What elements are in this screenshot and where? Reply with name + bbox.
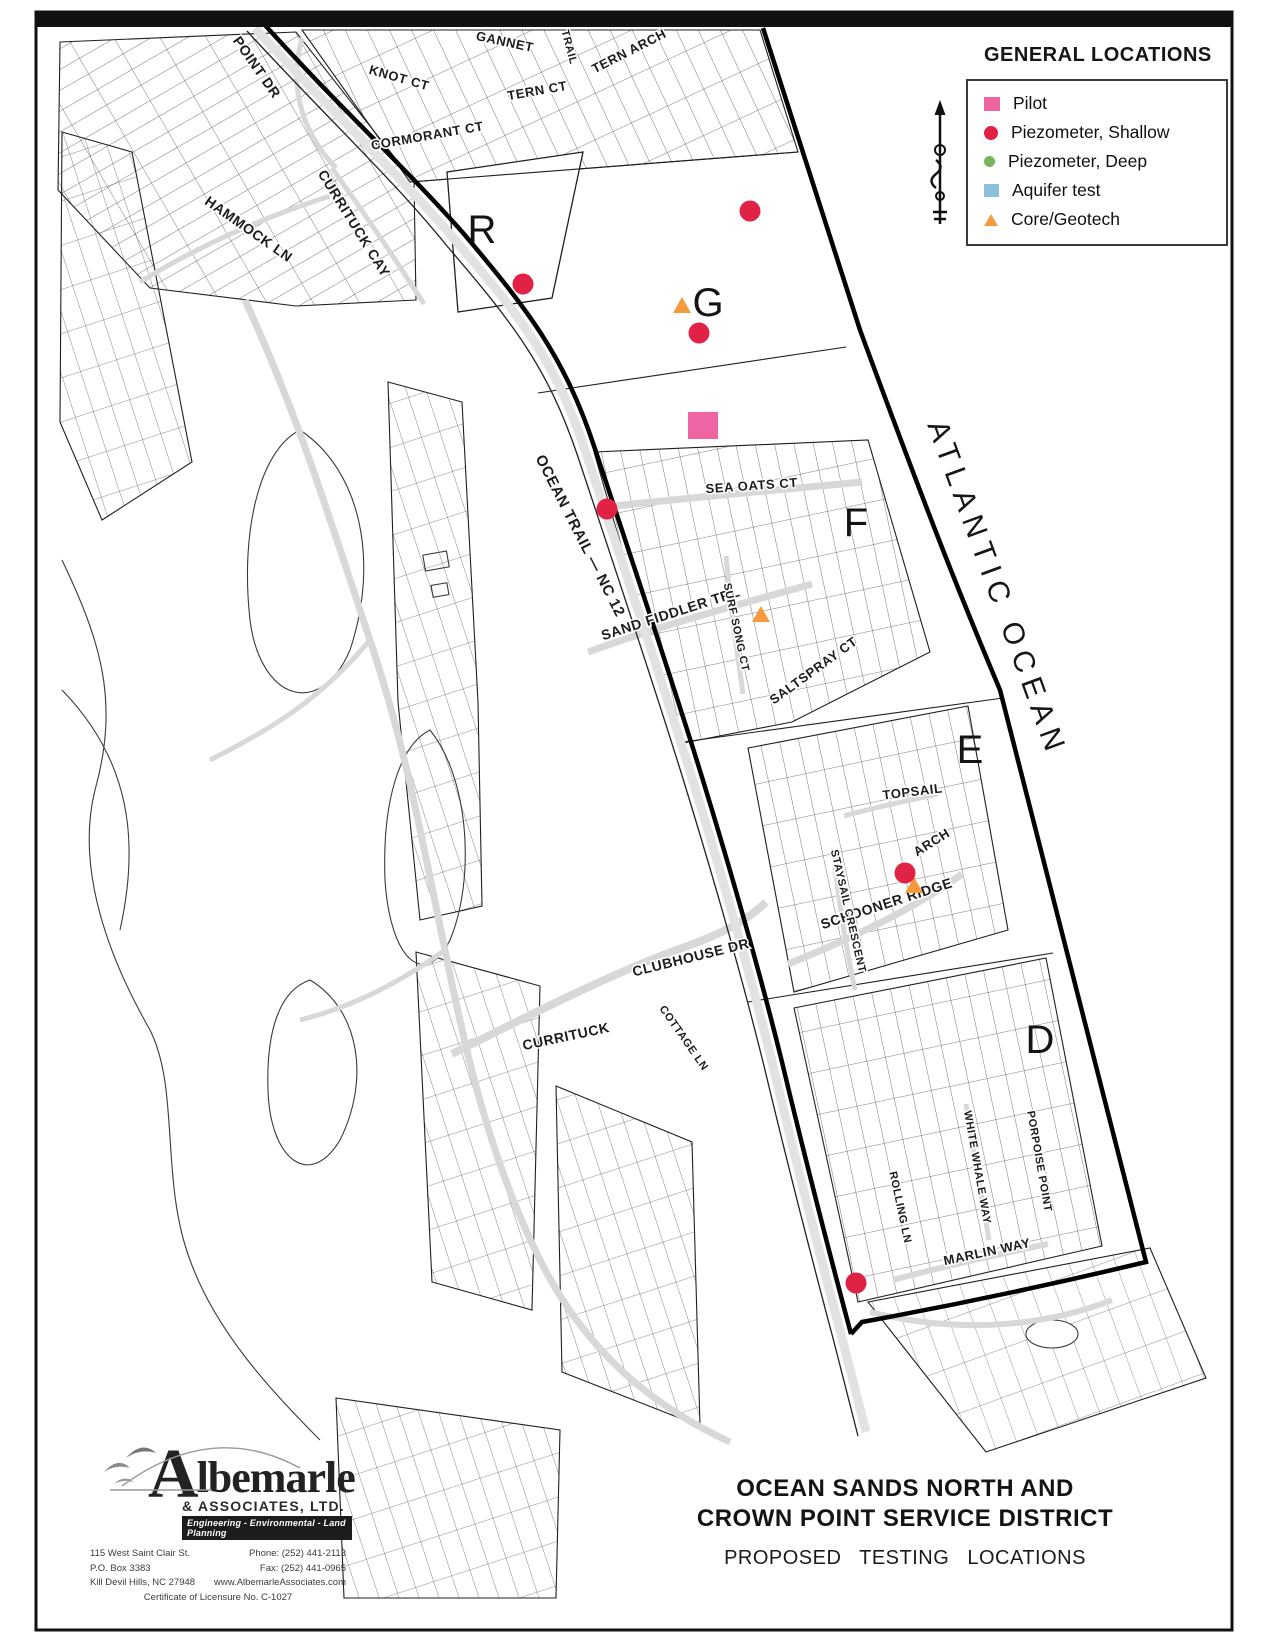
phone-number: Phone: (252) 441-2113	[214, 1547, 346, 1561]
legend-item-piezometer_shallow: Piezometer, Shallow	[984, 122, 1212, 143]
company-logo-block: Albemarle & ASSOCIATES, LTD. Engineering…	[90, 1416, 352, 1603]
seagull-logo-icon	[92, 1428, 322, 1502]
street-label: COTTAGE LN	[657, 1003, 711, 1073]
logo-address: 115 West Saint Clair St. P.O. Box 3383 K…	[90, 1547, 346, 1590]
marker-piezometer_shallow	[846, 1273, 867, 1294]
triangle-swatch	[984, 214, 998, 226]
legend-item-pilot: Pilot	[984, 93, 1212, 114]
parcel-block-golf-south	[416, 952, 540, 1310]
section-label-E: E	[957, 728, 984, 772]
legend-title: GENERAL LOCATIONS	[984, 44, 1228, 67]
marker-piezometer_shallow	[513, 274, 534, 295]
legend-item-core_geotech: Core/Geotech	[984, 209, 1212, 230]
map-subtitle: PROPOSED TESTING LOCATIONS	[640, 1547, 1170, 1570]
marker-piezometer_shallow	[740, 201, 761, 222]
map-canvas: POINT DRKNOT CTGANNETTRAILTERN ARCHTERN …	[0, 0, 1275, 1650]
circle-swatch	[984, 156, 995, 167]
section-label-G: G	[692, 281, 723, 325]
marker-pilot	[688, 412, 718, 439]
section-label-R: R	[468, 208, 497, 252]
address-city: Kill Devil Hills, NC 27948	[90, 1576, 195, 1590]
legend-item-label: Core/Geotech	[1011, 209, 1120, 230]
logo-tagline-banner: Engineering - Environmental - Land Plann…	[182, 1516, 352, 1540]
map-title-line1: OCEAN SANDS NORTH AND	[640, 1474, 1170, 1504]
north-arrow-icon	[932, 100, 948, 224]
legend-item-piezometer_deep: Piezometer, Deep	[984, 151, 1212, 172]
legend-item-label: Aquifer test	[1012, 180, 1101, 201]
legend-item-label: Pilot	[1013, 93, 1047, 114]
map-title-line2: CROWN POINT SERVICE DISTRICT	[640, 1504, 1170, 1534]
license-certificate: Certificate of Licensure No. C-1027	[90, 1592, 346, 1603]
marker-core_geotech	[673, 297, 691, 313]
marker-piezometer_shallow	[597, 499, 618, 520]
parcel-block-bottom-left	[336, 1398, 560, 1598]
legend-item-label: Piezometer, Shallow	[1011, 122, 1170, 143]
circle-swatch	[984, 126, 998, 140]
fax-number: Fax: (252) 441-0965	[214, 1562, 346, 1576]
pond	[1026, 1320, 1078, 1348]
legend-item-label: Piezometer, Deep	[1008, 151, 1147, 172]
address-street: 115 West Saint Clair St.	[90, 1547, 195, 1561]
section-label-F: F	[844, 501, 868, 545]
atlantic-ocean-label: ATLANTIC OCEAN	[921, 416, 1074, 762]
marker-piezometer_shallow	[689, 323, 710, 344]
section-label-D: D	[1026, 1018, 1055, 1062]
logo-address-left: 115 West Saint Clair St. P.O. Box 3383 K…	[90, 1547, 195, 1590]
logo-address-right: Phone: (252) 441-2113 Fax: (252) 441-096…	[214, 1547, 346, 1590]
marker-piezometer_shallow	[895, 863, 916, 884]
title-block: OCEAN SANDS NORTH AND CROWN POINT SERVIC…	[640, 1474, 1170, 1570]
address-pobox: P.O. Box 3383	[90, 1562, 195, 1576]
parcel-block-d	[794, 958, 1102, 1302]
parcel-strip-mid	[388, 382, 482, 920]
website-url: www.AlbemarleAssociates.com	[214, 1576, 346, 1590]
scanned-map-page: POINT DRKNOT CTGANNETTRAILTERN ARCHTERN …	[0, 0, 1275, 1650]
legend-box: PilotPiezometer, ShallowPiezometer, Deep…	[966, 79, 1228, 246]
legend-item-aquifer_test: Aquifer test	[984, 180, 1212, 201]
square-swatch	[984, 97, 1000, 111]
square-swatch	[984, 184, 999, 197]
legend: GENERAL LOCATIONS PilotPiezometer, Shall…	[966, 44, 1228, 246]
